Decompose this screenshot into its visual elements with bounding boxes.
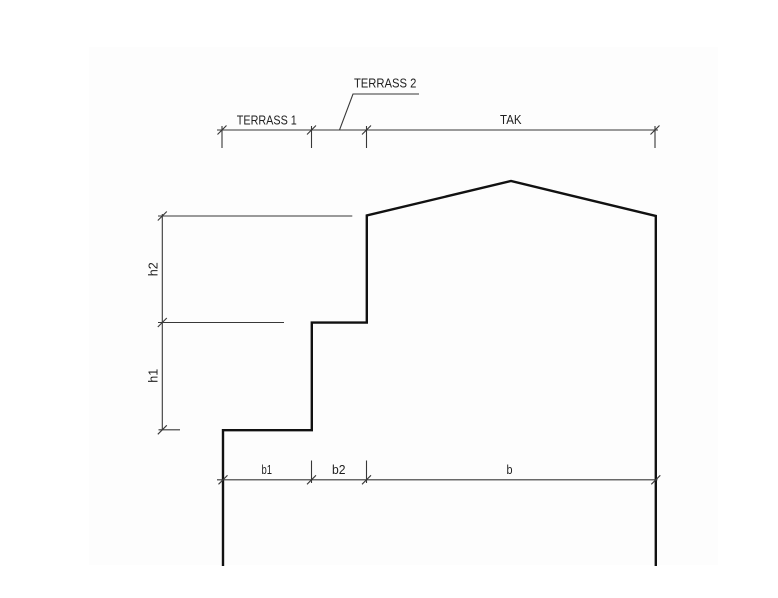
svg-text:TERRASS 1: TERRASS 1 [237,113,297,128]
svg-text:b: b [507,462,513,477]
svg-text:b2: b2 [332,462,346,477]
svg-text:h2: h2 [145,262,160,276]
svg-text:TERRASS 2: TERRASS 2 [354,75,417,90]
svg-text:TAK: TAK [500,112,522,127]
svg-text:b1: b1 [262,462,273,477]
svg-text:h1: h1 [145,369,160,383]
